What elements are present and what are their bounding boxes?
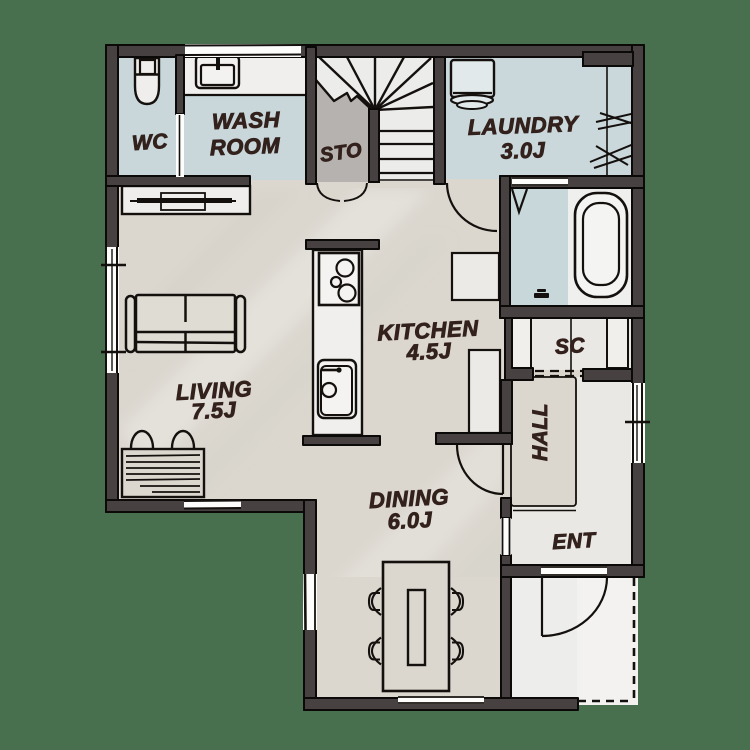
svg-text:WASH: WASH (212, 107, 281, 134)
svg-text:6.0J: 6.0J (387, 507, 433, 534)
svg-text:7.5J: 7.5J (191, 397, 237, 424)
svg-text:WC: WC (131, 130, 169, 155)
svg-text:LAUNDRY: LAUNDRY (467, 111, 580, 140)
svg-text:ENT: ENT (552, 529, 598, 554)
svg-text:4.5J: 4.5J (405, 338, 452, 365)
svg-text:HALL: HALL (529, 403, 552, 461)
svg-text:3.0J: 3.0J (500, 137, 546, 164)
svg-text:SC: SC (554, 334, 586, 359)
svg-text:ROOM: ROOM (209, 133, 280, 160)
